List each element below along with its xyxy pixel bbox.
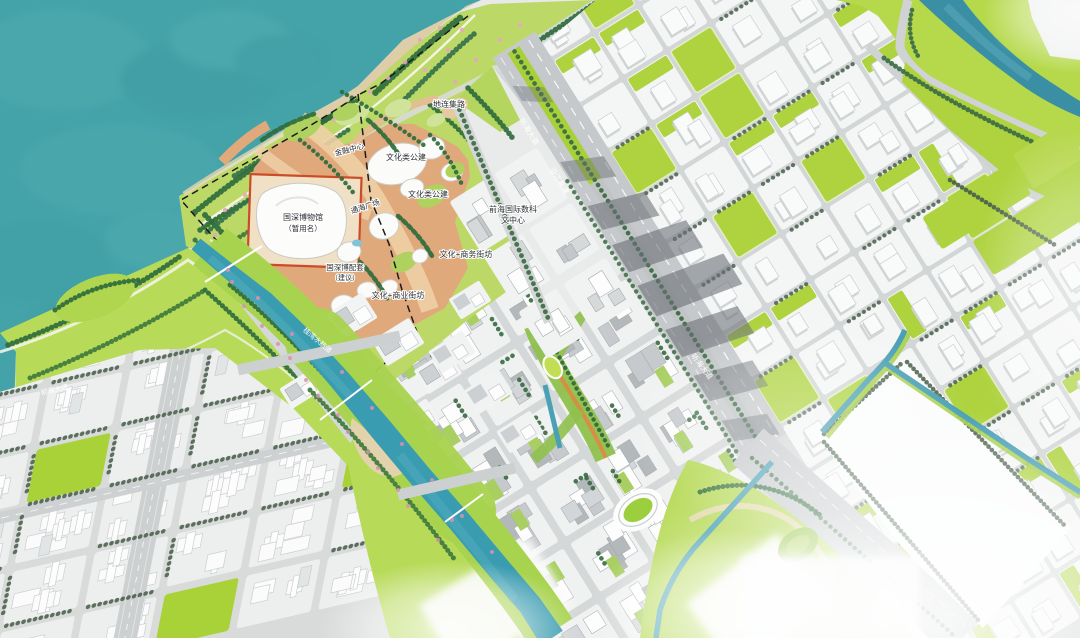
svg-text:文化+商业街坊: 文化+商业街坊	[372, 290, 425, 300]
svg-text:国深博配套: 国深博配套	[326, 262, 364, 272]
svg-text:地连集路: 地连集路	[433, 99, 465, 109]
svg-text:前海国际数科: 前海国际数科	[489, 204, 537, 214]
svg-text:国深博物馆: 国深博物馆	[283, 212, 323, 222]
svg-text:文中心: 文中心	[501, 215, 525, 225]
svg-text:（建议）: （建议）	[331, 273, 359, 282]
svg-text:文化类公建: 文化类公建	[408, 189, 448, 199]
svg-text:文化类公建: 文化类公建	[386, 152, 426, 162]
svg-text:（暂用名）: （暂用名）	[284, 223, 322, 233]
svg-text:文化+商务街坊: 文化+商务街坊	[440, 249, 493, 259]
